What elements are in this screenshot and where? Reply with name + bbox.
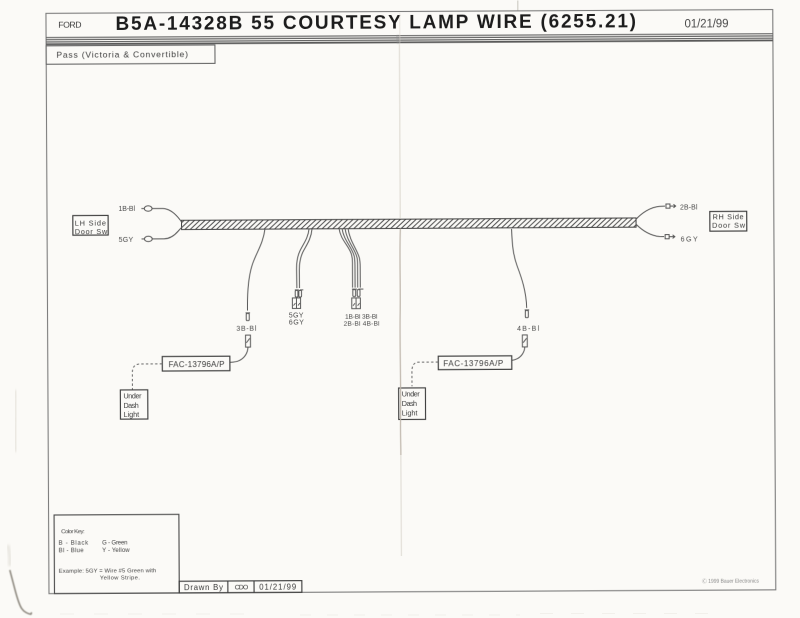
svg-text:6GY: 6GY [289,319,304,326]
svg-text:Drawn By: Drawn By [184,583,223,592]
svg-text:01/21/99: 01/21/99 [259,582,296,591]
svg-text:6GY: 6GY [681,236,698,243]
svg-text:01/21/99: 01/21/99 [684,18,728,30]
svg-text:2B-Bl 4B-Bl: 2B-Bl 4B-Bl [344,321,381,328]
svg-text:B - Black: B - Black [59,540,90,546]
svg-text:Door Sw: Door Sw [712,221,746,230]
svg-text:4B-Bl: 4B-Bl [517,326,539,333]
svg-text:Light: Light [402,408,418,417]
svg-text:FORD: FORD [58,20,82,30]
svg-text:Y - Yellow: Y - Yellow [102,548,130,554]
svg-text:Door Sw: Door Sw [75,227,108,236]
svg-text:Light: Light [124,410,140,419]
svg-text:2B-Bl: 2B-Bl [680,204,698,211]
svg-text:5GY: 5GY [289,312,304,319]
svg-text:Dash: Dash [402,399,417,408]
svg-text:Example: 5GY = Wire #5 Green w: Example: 5GY = Wire #5 Green with [59,568,157,575]
svg-text:Under: Under [402,389,421,398]
svg-text:5GY: 5GY [119,237,134,244]
svg-text:FAC-13796A/P: FAC-13796A/P [168,360,224,369]
svg-text:Under: Under [123,391,142,400]
svg-text:Color Key:: Color Key: [61,529,85,535]
svg-text:Dash: Dash [123,401,138,410]
svg-text:Yellow Stripe.: Yellow Stripe. [100,575,140,581]
svg-text:B5A-14328B 55 COURTESY LAMP W: B5A-14328B 55 COURTESY LAMP WIRE (6255.2… [115,11,637,35]
svg-text:Bl - Blue: Bl - Blue [59,548,85,554]
svg-text:3B-Bl: 3B-Bl [236,326,256,333]
svg-text:FAC-13796A/P: FAC-13796A/P [443,359,503,368]
svg-text:1B-Bl 3B-Bl: 1B-Bl 3B-Bl [345,313,378,320]
svg-text:Pass (Victoria & Convertible): Pass (Victoria & Convertible) [56,49,188,60]
svg-text:1B-Bl: 1B-Bl [118,206,135,213]
svg-text:G - Green: G - Green [102,540,127,546]
svg-text:CDO: CDO [235,584,249,591]
svg-text:Ⓒ 1999 Bauer Electronics: Ⓒ 1999 Bauer Electronics [702,577,760,584]
